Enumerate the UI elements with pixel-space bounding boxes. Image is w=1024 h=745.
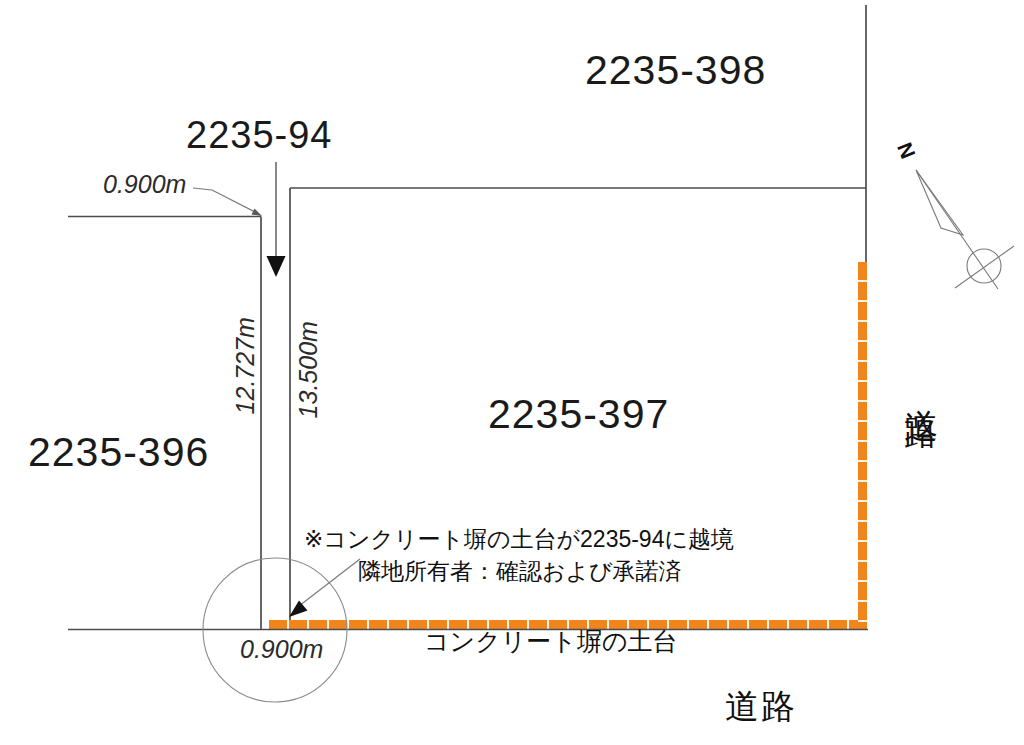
road-label-east: 道路 <box>902 383 939 395</box>
leader-top-width <box>193 188 262 216</box>
measurement-bottom-width: 0.900m <box>240 636 323 664</box>
compass-cross-line <box>955 246 1014 288</box>
compass-circle <box>967 249 1001 283</box>
measurement-east-length: 13.500m <box>295 310 323 430</box>
parcel-label-2235-397: 2235-397 <box>488 392 669 437</box>
note-owner-consent: 隣地所有者：確認および承諾済 <box>358 559 682 584</box>
parcel-label-2235-94: 2235-94 <box>186 115 332 157</box>
north-compass-icon <box>916 170 1014 289</box>
note-encroachment: ※コンクリート塀の土台が2235-94に越境 <box>304 527 734 552</box>
compass-axis-line <box>916 170 998 289</box>
measurement-west-length: 12.727m <box>232 306 260 426</box>
parcel-label-2235-396: 2235-396 <box>28 430 209 475</box>
road-label-south: 道路 <box>725 688 797 725</box>
label-concrete-fence-base: コンクリート塀の土台 <box>424 628 678 656</box>
measurement-top-width: 0.900m <box>103 171 186 199</box>
parcel-label-2235-398: 2235-398 <box>585 48 766 93</box>
leader-encroachment <box>289 559 360 617</box>
pointer-parcel-94 <box>267 162 286 277</box>
land-survey-drawing: 2235-398 2235-94 2235-396 2235-397 0.900… <box>0 0 1024 745</box>
